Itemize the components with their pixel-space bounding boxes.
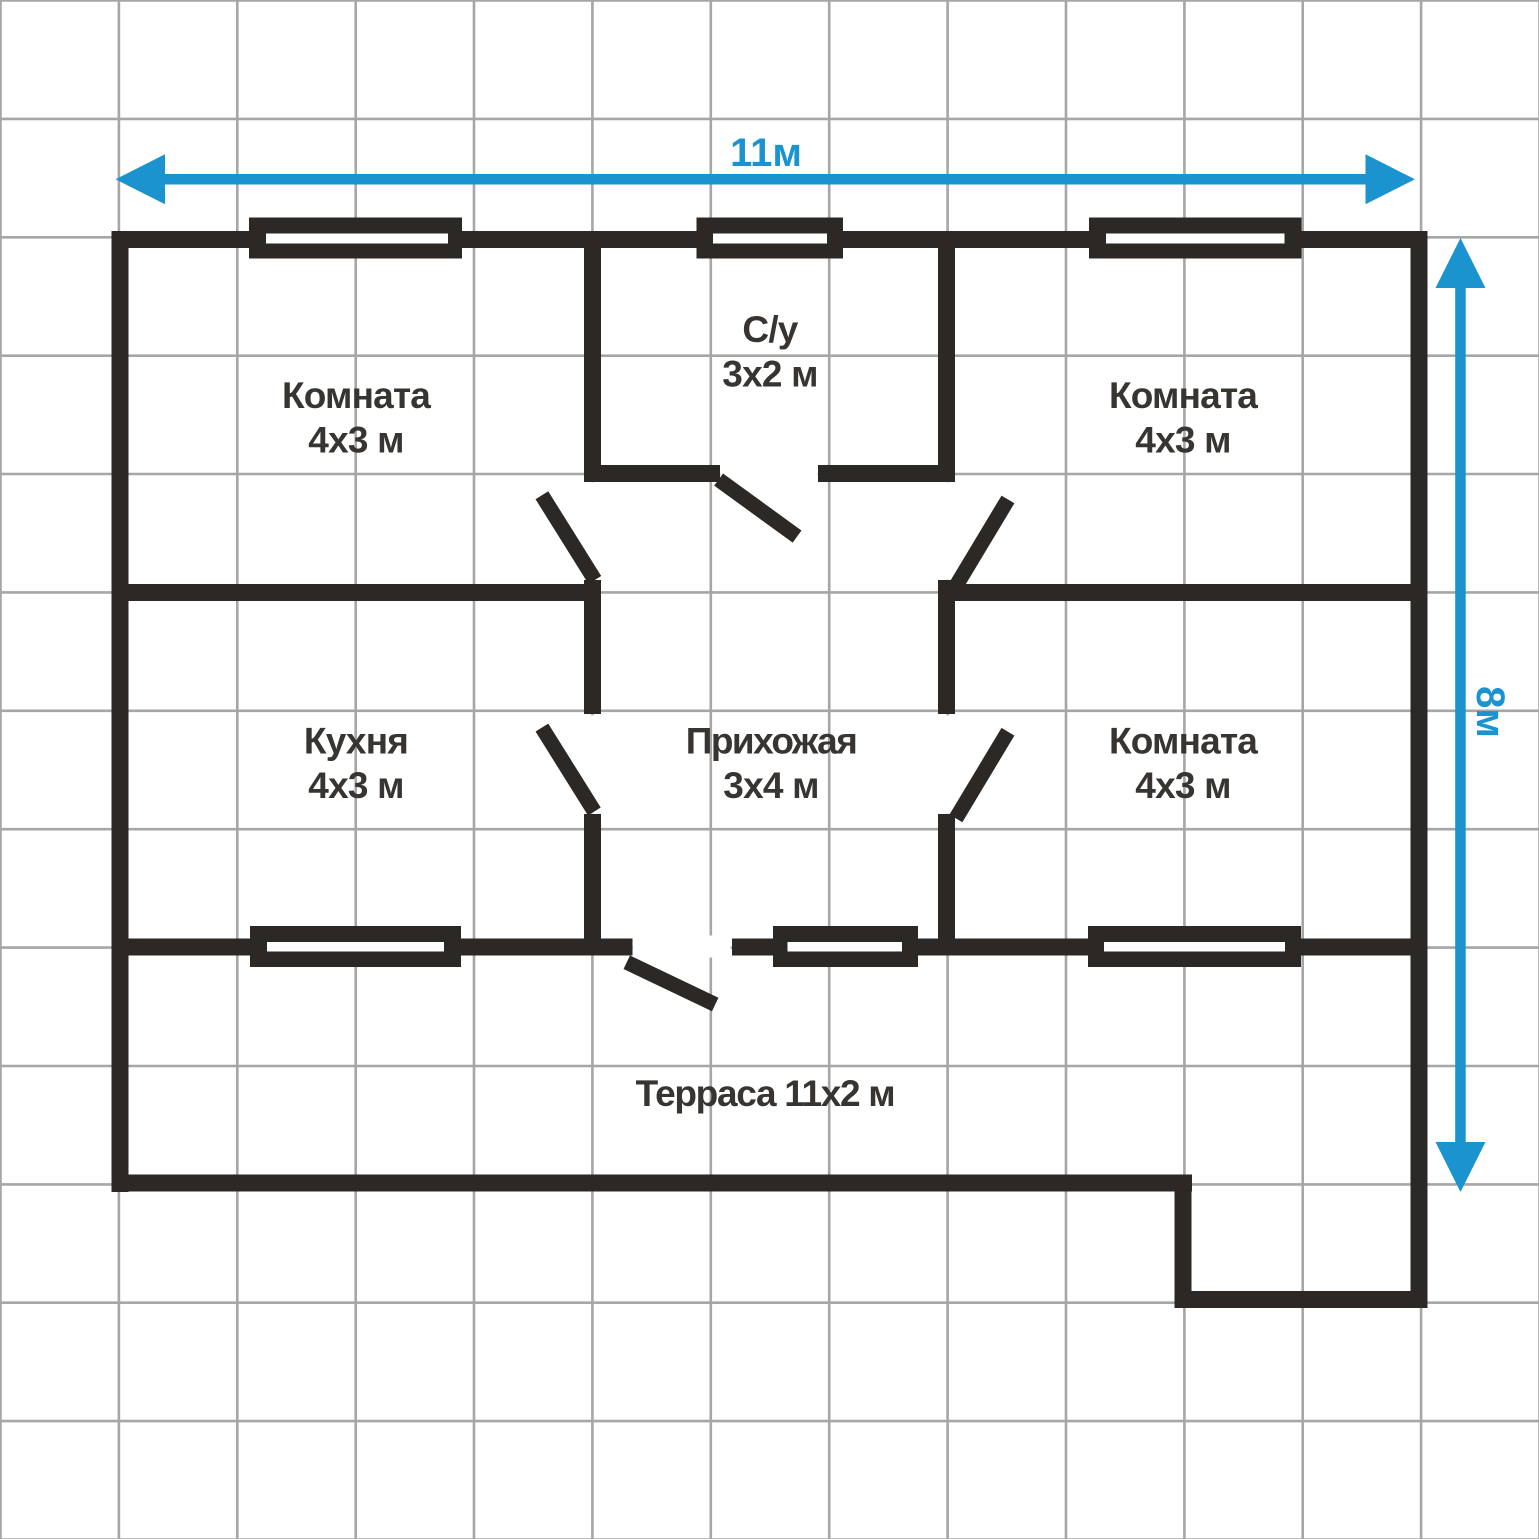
- svg-text:4х3 м: 4х3 м: [1135, 765, 1230, 806]
- svg-text:8м: 8м: [1468, 686, 1512, 738]
- svg-text:Комната: Комната: [1109, 375, 1258, 416]
- svg-text:Комната: Комната: [282, 375, 431, 416]
- svg-text:4х3 м: 4х3 м: [1135, 420, 1230, 461]
- svg-text:3х2 м: 3х2 м: [722, 354, 817, 395]
- svg-text:С/у: С/у: [742, 309, 798, 350]
- svg-text:Терраса 11х2 м: Терраса 11х2 м: [636, 1073, 895, 1114]
- svg-text:4х3 м: 4х3 м: [308, 420, 403, 461]
- svg-text:Кухня: Кухня: [304, 721, 408, 762]
- svg-text:3х4 м: 3х4 м: [723, 765, 818, 806]
- svg-text:Прихожая: Прихожая: [686, 721, 857, 762]
- svg-text:Комната: Комната: [1109, 721, 1258, 762]
- svg-text:11м: 11м: [730, 131, 802, 175]
- svg-text:4х3 м: 4х3 м: [308, 765, 403, 806]
